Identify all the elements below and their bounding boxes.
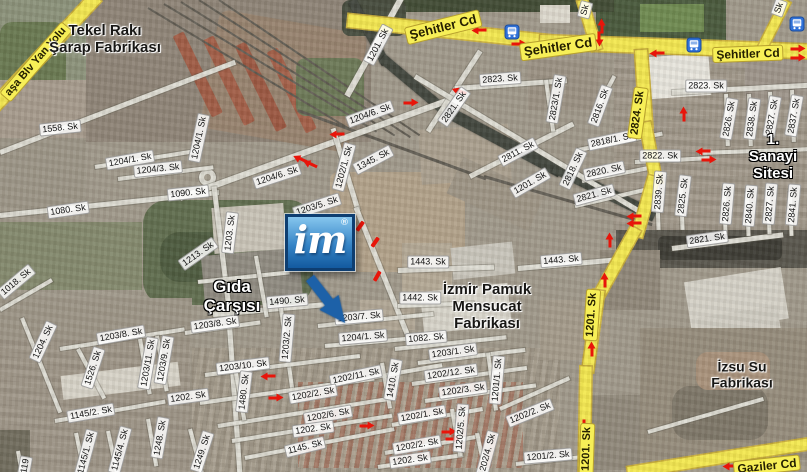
oneway-arrow-icon — [591, 348, 594, 357]
oneway-arrow-icon — [604, 279, 607, 288]
street-label: 119 — [17, 455, 33, 472]
oneway-arrow-icon — [791, 57, 800, 60]
oneway-arrow-icon — [702, 150, 711, 153]
terrain-patch — [540, 5, 570, 23]
place-label: 1. Sanayi Sitesi — [749, 132, 797, 182]
oneway-arrow-icon — [633, 222, 642, 225]
im-logo-text: im — [294, 221, 347, 259]
street-label: 1203/8. Sk — [190, 314, 240, 334]
bus-stop-icon — [790, 17, 805, 32]
place-label: İzsu Su Fabrikası — [711, 359, 772, 390]
oneway-arrow-icon — [702, 159, 711, 162]
bus-stop-icon — [505, 25, 520, 40]
oneway-arrow-icon — [601, 25, 604, 34]
map-canvas[interactable]: im ® 1558. Sk1204/1. Sk1204/1 — [0, 0, 807, 472]
terrain-patch — [640, 4, 704, 32]
street-label: 1345. Sk — [352, 145, 395, 176]
terrain-patch — [450, 242, 515, 280]
terrain-patch — [745, 60, 807, 100]
oneway-arrow-icon — [360, 425, 369, 428]
oneway-arrow-icon — [598, 32, 601, 41]
street-label: 2822. Sk — [639, 150, 681, 163]
place-label: İzmir Pamuk Mensucat Fabrikası — [443, 282, 531, 332]
registered-trademark-icon: ® — [340, 218, 349, 228]
oneway-arrow-icon — [269, 397, 278, 400]
street-label: 1201/2. Sk — [523, 447, 573, 464]
oneway-arrow-icon — [478, 29, 487, 32]
oneway-arrow-icon — [336, 133, 345, 136]
bus-stop-icon — [687, 38, 702, 53]
im-logo-marker: im ® — [285, 214, 355, 271]
oneway-arrow-icon — [442, 431, 451, 434]
street-label: 1443. Sk — [407, 256, 449, 269]
oneway-arrow-icon — [609, 239, 612, 248]
oneway-arrow-icon — [267, 375, 276, 378]
oneway-arrow-icon — [683, 113, 686, 122]
street-label: 2823. Sk — [685, 80, 727, 93]
place-label: Tekel Rakı Şarap Fabrikası — [49, 23, 161, 57]
oneway-arrow-icon — [308, 162, 317, 169]
place-label: Gıda Çarşısı — [204, 277, 261, 315]
oneway-arrow-icon — [404, 102, 413, 105]
road-name-label: 1201. Sk — [579, 423, 596, 472]
oneway-arrow-icon — [656, 52, 665, 55]
street-label: 1442. Sk — [399, 292, 441, 305]
oneway-arrow-icon — [791, 48, 800, 51]
road-name-label: Şehitler Cd — [712, 45, 784, 64]
oneway-arrow-icon — [633, 215, 642, 218]
